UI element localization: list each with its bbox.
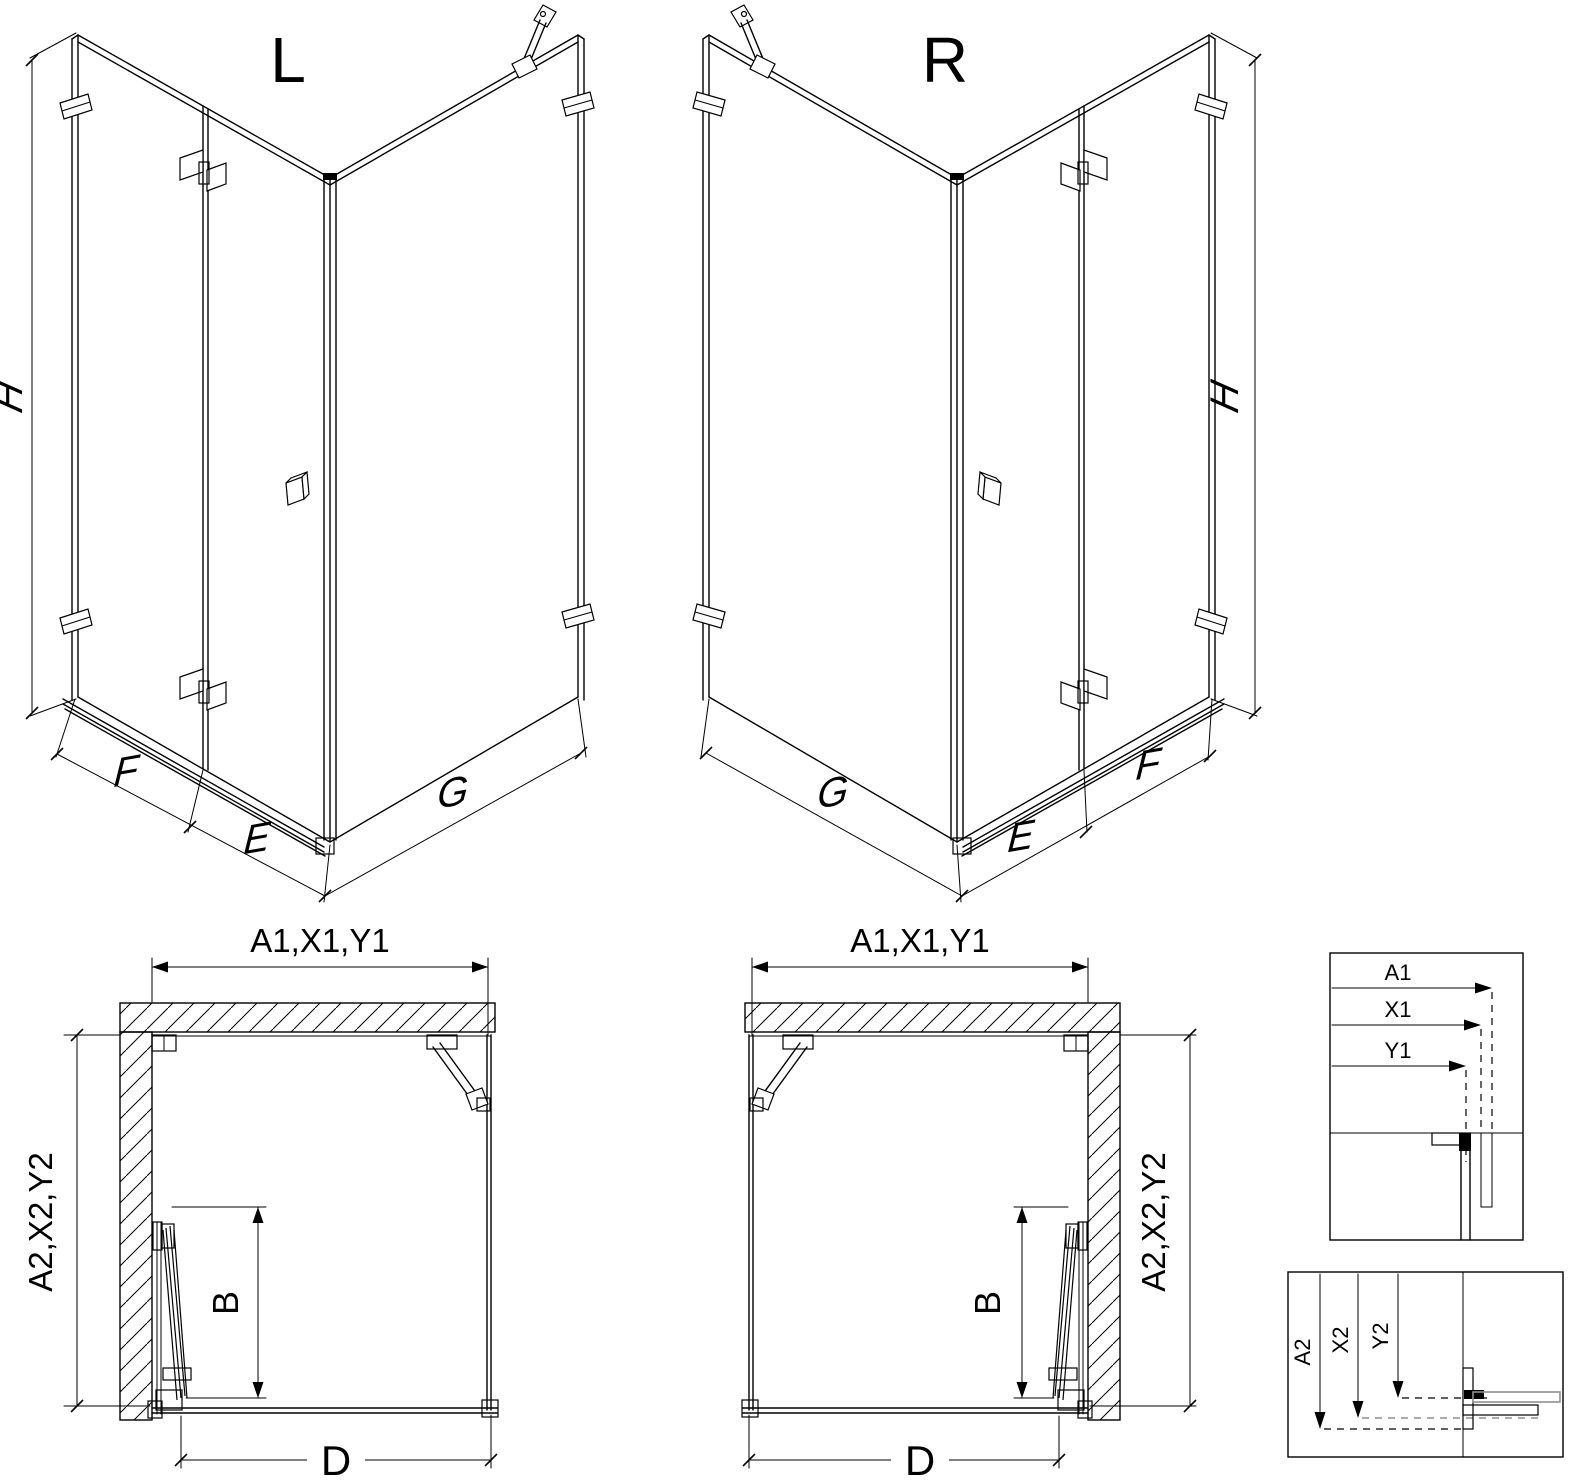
wall-left (120, 1032, 152, 1420)
support-bar-plan-icon (750, 1035, 813, 1111)
dim-label-f: F (112, 745, 141, 796)
corner-connector (323, 173, 337, 180)
support-bar-icon (512, 5, 556, 78)
detail-label-x2: X2 (1328, 1327, 1353, 1354)
dimension-d-left: D (175, 1415, 497, 1484)
support-bar-icon (731, 5, 775, 78)
corner-connector (950, 173, 964, 180)
view-label-right: R (922, 24, 968, 96)
dim-label-d: D (321, 1437, 351, 1484)
dim-label-f: F (1134, 738, 1163, 789)
plan-left-view: A1,X1,Y1 A2,X2,Y2 B D (22, 922, 498, 1484)
detail-label-a2: A2 (1290, 1339, 1315, 1366)
dim-label-g: G (816, 766, 850, 818)
dim-label-e: E (242, 812, 272, 863)
technical-drawing-page: L (0, 0, 1582, 1484)
dim-label-b: B (205, 1291, 246, 1315)
detail-label-y2: Y2 (1368, 1323, 1393, 1350)
dim-label-a2x2y2: A2,X2,Y2 (22, 1152, 59, 1291)
dimension-d-right: D (743, 1415, 1065, 1484)
detail-label-x1: X1 (1385, 997, 1412, 1022)
detail-width-box: A1 X1 Y1 (1330, 953, 1523, 1240)
dim-label-g: G (436, 766, 470, 818)
door-handle-icon (978, 472, 1001, 505)
rail-profile-section (1463, 1368, 1560, 1429)
iso-right-view: R (693, 5, 1261, 902)
shower-enclosure-diagram: L (0, 0, 1582, 1484)
dim-label-a2x2y2: A2,X2,Y2 (1135, 1152, 1172, 1291)
detail-label-y1: Y1 (1385, 1038, 1412, 1063)
wall-profile-section (1432, 1133, 1492, 1240)
dim-label-a1x1y1: A1,X1,Y1 (250, 922, 389, 959)
dim-label-e: E (1006, 810, 1036, 861)
dim-label-b: B (967, 1291, 1008, 1315)
plan-right-view: A1,X1,Y1 A2,X2,Y2 B D (742, 922, 1196, 1484)
iso-left-view: L (0, 5, 594, 902)
dim-label-a1x1y1: A1,X1,Y1 (850, 922, 989, 959)
dimension-base-right: F E G (700, 699, 1216, 902)
dimension-base-left: F E G (51, 699, 587, 902)
dimension-b-right: B (967, 1207, 1068, 1398)
wall-right (1088, 1032, 1120, 1420)
door-handle-icon (286, 472, 309, 505)
wall-top (745, 1003, 1120, 1032)
detail-label-a1: A1 (1385, 960, 1412, 985)
folding-door-plan (1049, 1222, 1087, 1414)
dim-label-h: H (0, 376, 31, 417)
rail-corner-fitting (316, 838, 334, 854)
wall-top (120, 1003, 495, 1032)
dimension-b-left: B (172, 1207, 266, 1398)
rail-corner-fitting (953, 838, 971, 854)
folding-door-plan (153, 1222, 191, 1414)
support-bar-plan-icon (427, 1035, 490, 1111)
detail-depth-box: A2 X2 Y2 (1288, 1272, 1563, 1457)
view-label-left: L (270, 24, 306, 96)
dim-label-d: D (905, 1437, 935, 1484)
